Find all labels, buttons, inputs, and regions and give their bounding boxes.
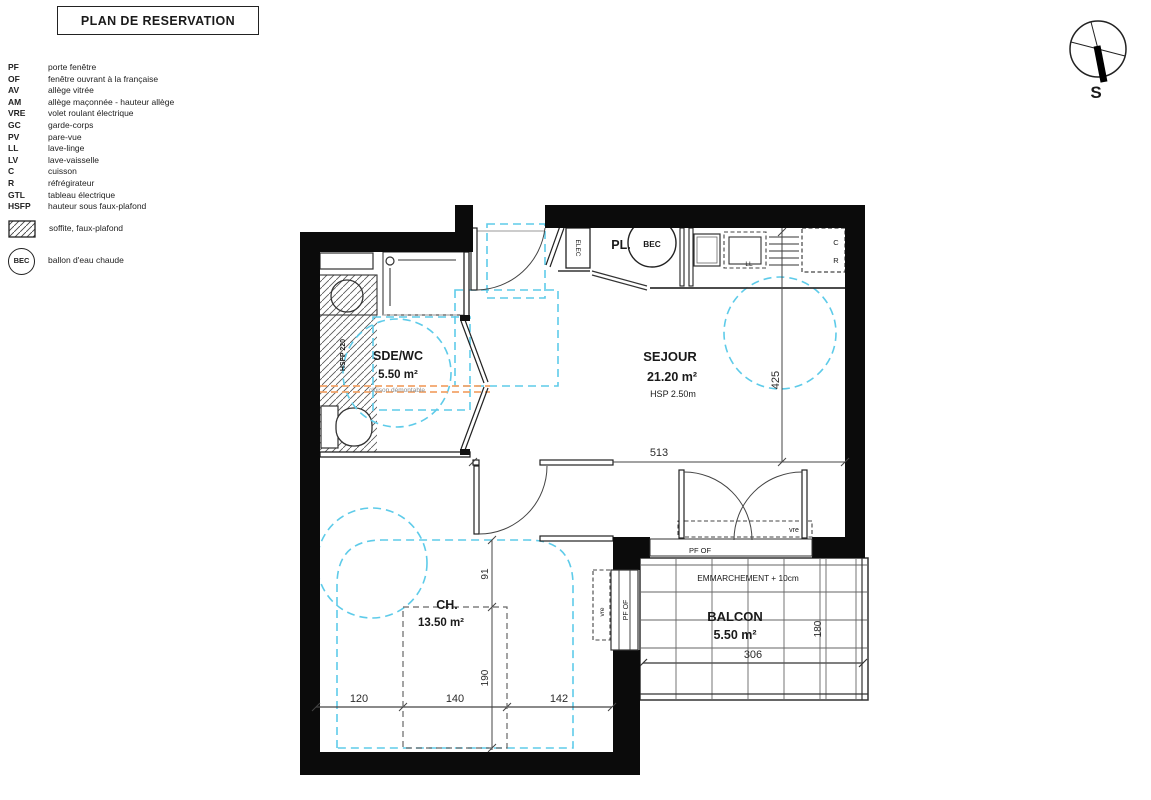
entry-door	[471, 226, 564, 290]
compass: S	[1070, 21, 1126, 102]
dim-142: 142	[550, 693, 568, 705]
hsfp-annotation: HSFP 220	[340, 339, 347, 371]
shower-tray	[383, 252, 464, 315]
dim-425: 425	[770, 371, 782, 389]
ch-door	[474, 466, 547, 534]
drainer-lines	[769, 237, 799, 265]
pf-of-label-balcony: PF OF	[689, 546, 712, 555]
dim-91: 91	[480, 568, 491, 580]
vanity-counter	[320, 253, 373, 269]
shower-drain-icon	[386, 257, 394, 265]
dim-190: 190	[480, 669, 491, 686]
room-label-sejour: SEJOUR	[643, 349, 697, 364]
ch-door-leaf	[474, 466, 479, 534]
floor-plan-page: PLAN DE RESERVATION PFporte fenêtre OFfe…	[0, 0, 1151, 800]
toilet-bowl	[336, 408, 372, 446]
kitchen-strip	[558, 219, 845, 290]
pf-of-label-ch-window: PF OF	[623, 600, 630, 621]
room-area-balcon: 5.50 m²	[713, 628, 756, 642]
room-area-sdewc: 5.50 m²	[378, 369, 418, 381]
bec-annotation: BEC	[643, 239, 661, 249]
vre-label-ch-window: vre	[599, 607, 606, 616]
room-height-sejour: HSP 2.50m	[650, 389, 696, 399]
french-door-leaf-left	[679, 470, 684, 538]
ch-vre-shutter-box	[593, 570, 610, 640]
ch-door-swing	[479, 466, 547, 534]
room-area-ch: 13.50 m²	[418, 617, 464, 629]
dim-140: 140	[446, 693, 464, 705]
cloison-annotation: cloison démontable	[369, 387, 425, 394]
compass-south-label: S	[1090, 83, 1101, 102]
room-label-balcon: BALCON	[707, 609, 763, 624]
dim-513: 513	[650, 447, 668, 459]
clearance-circle-ch	[317, 508, 427, 618]
room-label-pl: PL.	[611, 238, 630, 252]
cooking-fridge-reservation	[802, 228, 845, 272]
closet-front-panel	[592, 271, 647, 286]
vre-label-balcony: vre	[789, 527, 799, 534]
dim-120: 120	[350, 693, 368, 705]
cooking-annotation: C	[833, 238, 839, 247]
french-door-swing-left	[684, 472, 752, 540]
clearance-rect-ch	[337, 540, 573, 748]
fridge-annotation: R	[833, 256, 839, 265]
french-door-leaf-right	[802, 470, 807, 538]
plan-drawing: SDE/WC 5.50 m² HSFP 220 cloison démontab…	[0, 0, 1151, 800]
ll-annotation: LL	[745, 261, 753, 268]
balcony-french-door	[650, 470, 812, 556]
dim-306: 306	[744, 649, 762, 661]
room-label-ch: CH.	[436, 598, 458, 612]
french-door-frame	[650, 539, 812, 556]
room-label-sdewc: SDE/WC	[373, 349, 423, 363]
balcony-step-note: EMMARCHEMENT + 10cm	[697, 573, 799, 583]
dim-180: 180	[813, 620, 824, 637]
elec-annotation: ELEC	[574, 240, 581, 257]
kitchen-sink	[694, 234, 720, 266]
room-area-sejour: 21.20 m²	[647, 370, 697, 384]
